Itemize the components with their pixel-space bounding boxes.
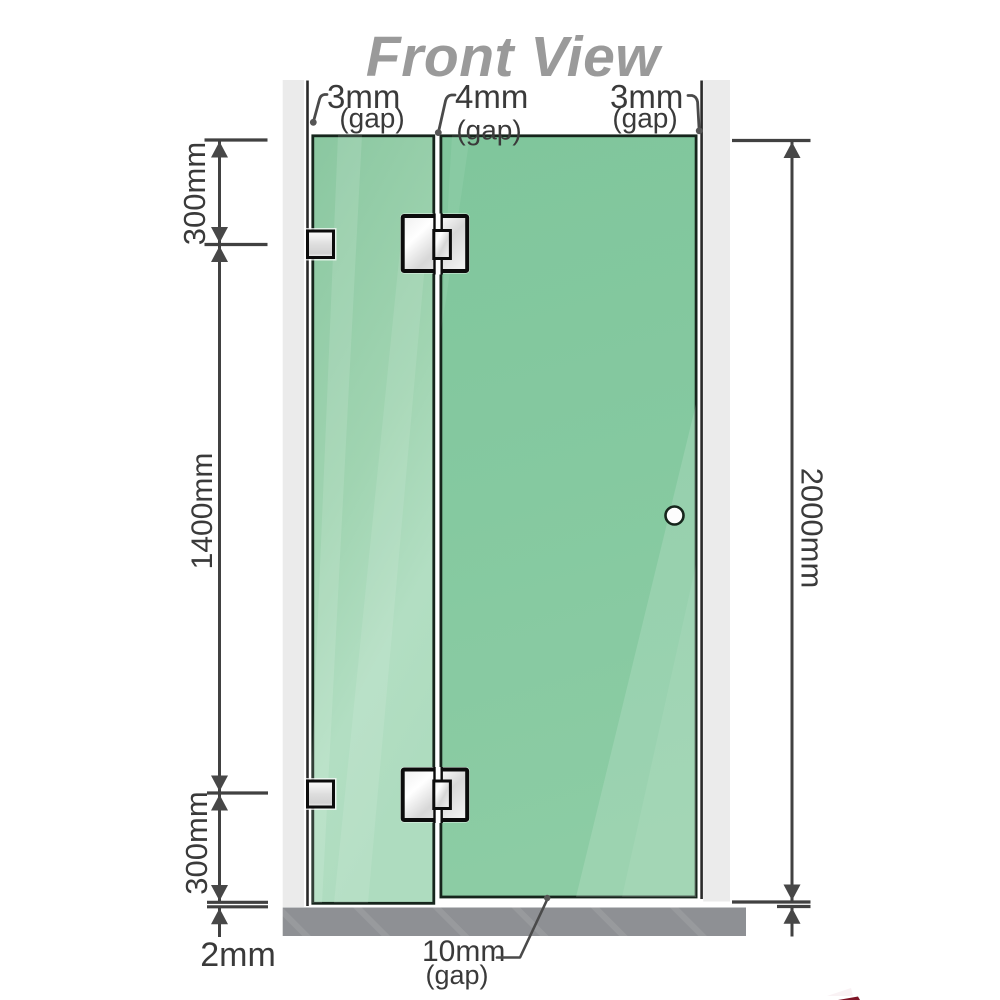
svg-text:2mm: 2mm <box>200 936 276 974</box>
svg-text:1400mm: 1400mm <box>186 453 219 570</box>
svg-text:(gap): (gap) <box>456 115 521 146</box>
svg-text:300mm: 300mm <box>177 142 212 245</box>
svg-text:4mm: 4mm <box>455 78 528 115</box>
svg-text:(gap): (gap) <box>612 103 677 134</box>
svg-text:300mm: 300mm <box>179 791 214 894</box>
svg-text:(gap): (gap) <box>339 103 404 134</box>
svg-text:2000mm: 2000mm <box>794 468 829 589</box>
svg-text:(gap): (gap) <box>425 960 488 990</box>
